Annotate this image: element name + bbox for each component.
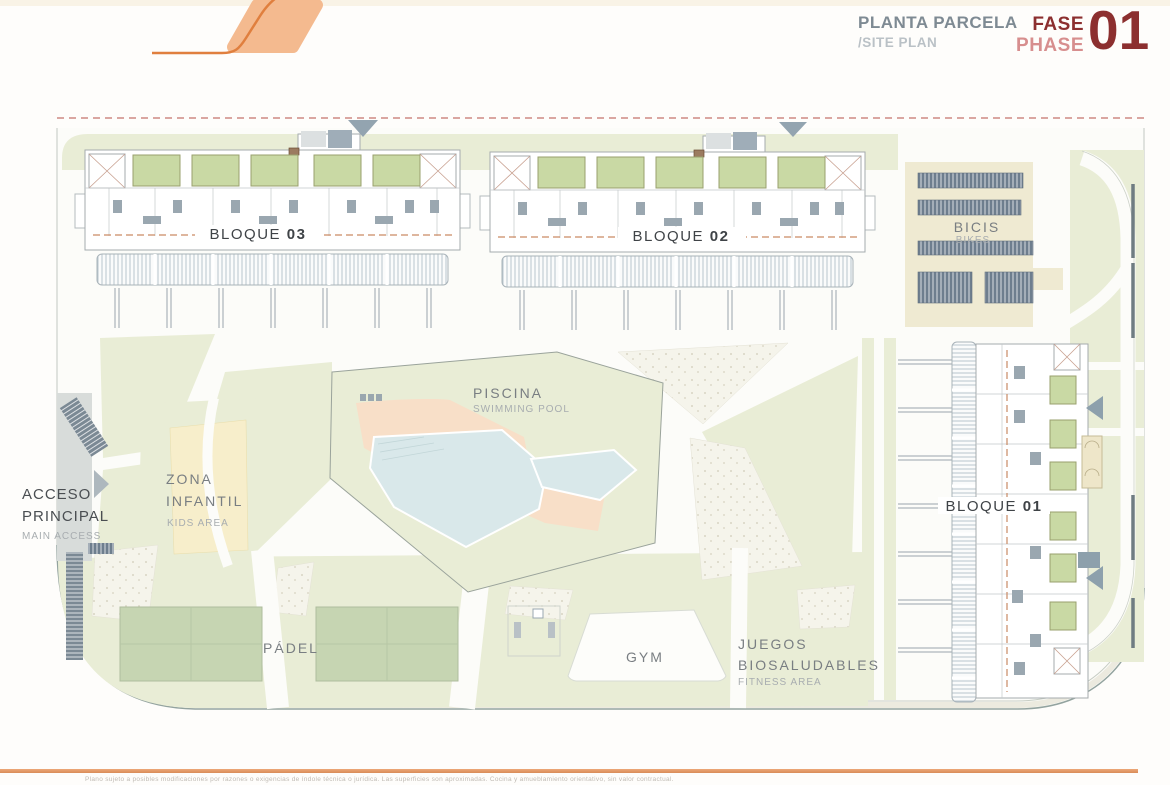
kids-label-line1: ZONA	[166, 471, 213, 487]
footer-disclaimer: Plano sujeto a posibles modificaciones p…	[85, 776, 674, 783]
footer-rule	[0, 769, 1138, 773]
site-plan-page: PLANTA PARCELA /SITE PLAN FASE PHASE 01	[0, 0, 1170, 785]
access-label-line2: PRINCIPAL	[22, 508, 109, 525]
access-label-en: MAIN ACCESS	[22, 531, 101, 542]
fitness-label-line2: BIOSALUDABLES	[738, 657, 880, 673]
pool-label-en: SWIMMING POOL	[473, 404, 570, 415]
gym-label: GYM	[626, 649, 664, 665]
bloque-02-label: BLOQUE 02	[633, 228, 730, 245]
fitness-label-en: FITNESS AREA	[738, 677, 822, 688]
fitness-label-line1: JUEGOS	[738, 636, 808, 652]
bikes-label-es: BICIS	[954, 219, 1001, 235]
kids-label-line2: INFANTIL	[166, 493, 243, 509]
pool-label-es: PISCINA	[473, 385, 543, 401]
bloque-01-label: BLOQUE 01	[946, 498, 1043, 515]
padel-label: PÁDEL	[263, 640, 319, 656]
kids-label-en: KIDS AREA	[167, 518, 229, 529]
bloque-03-label: BLOQUE 03	[210, 226, 307, 243]
access-label-line1: ACCESO	[22, 486, 91, 503]
bikes-label-en: BIKES	[956, 235, 990, 246]
site-plan-drawing: BLOQUE 03 BLOQUE 02 BLOQUE 01 BICIS BIKE…	[0, 0, 1170, 785]
